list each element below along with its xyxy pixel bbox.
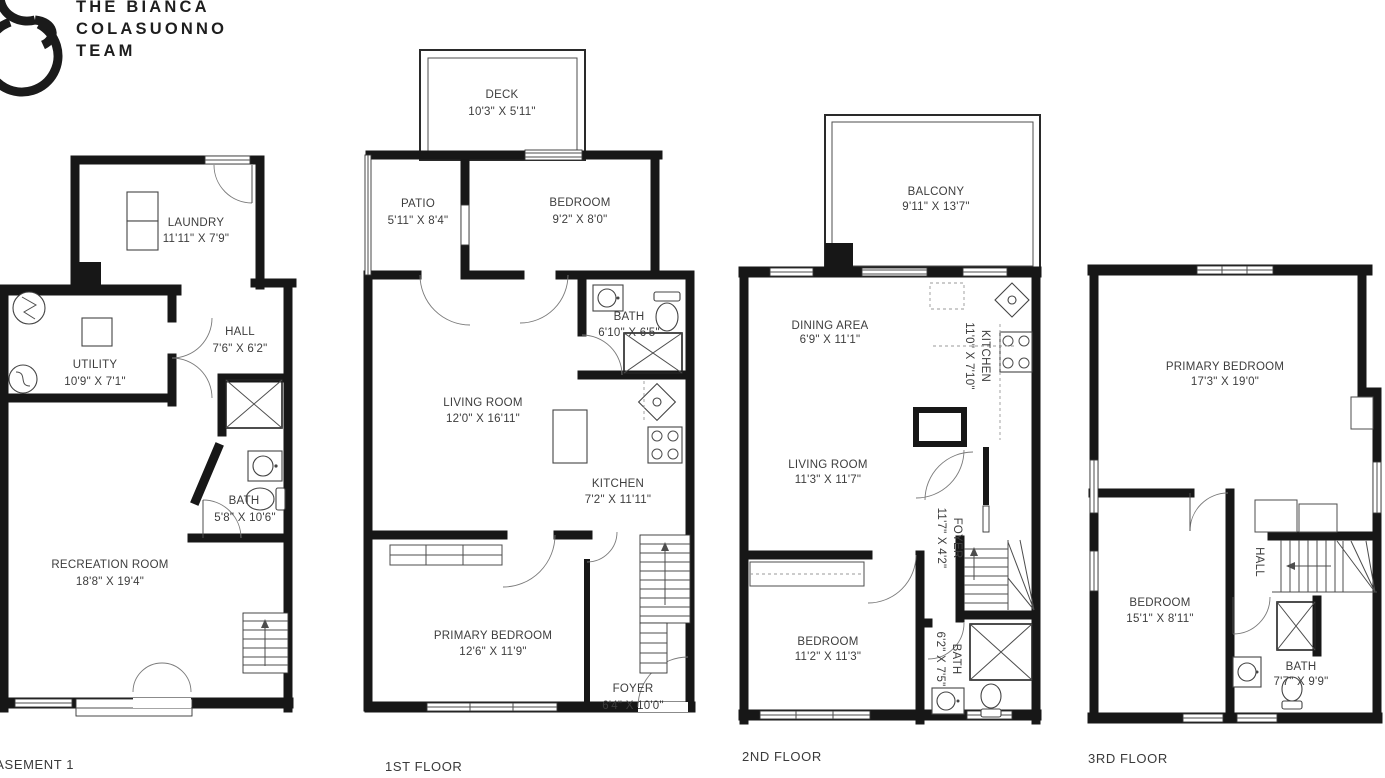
floor-label-first: 1ST FLOOR (385, 759, 462, 774)
room-dims-bath: 7'7" X 9'9" (1274, 676, 1329, 688)
room-dims-living: 11'3" X 11'7" (795, 474, 862, 486)
room-label-deck: DECK (486, 89, 519, 101)
third-stairs (1272, 540, 1377, 592)
room-dims-primary: 12'6" X 11'9" (459, 646, 526, 658)
first-deck (420, 50, 585, 160)
room-label-bedroom: BEDROOM (797, 636, 858, 648)
room-dims-kitchen: 7'2" X 11'11" (585, 494, 652, 506)
room-label-bath: BATH (950, 644, 962, 675)
basement-shower (226, 380, 282, 428)
room-label-primary: PRIMARY BEDROOM (434, 630, 552, 642)
room-label-balcony: BALCONY (908, 186, 965, 198)
room-dims-kitchen: 11'0" X 7'10" (963, 322, 975, 389)
room-dims-foyer: 6'4" X 10'0" (602, 700, 664, 712)
room-dims-dining: 6'9" X 11'1" (800, 334, 861, 346)
floor-plan-third: PRIMARY BEDROOM 17'3" X 19'0" BEDROOM 15… (1085, 260, 1385, 735)
room-label-foyer: FOYER (613, 683, 654, 695)
floor-plan-second: BALCONY 9'11" X 13'7" DINING AREA 6'9" X… (720, 110, 1050, 735)
room-label-utility: UTILITY (73, 359, 118, 371)
floor-plan-first: DECK 10'3" X 5'11" PATIO 5'11" X 8'4" BE… (360, 45, 700, 735)
room-dims-bedroom: 15'1" X 8'11" (1126, 613, 1193, 625)
floor-plan-basement: LAUNDRY 11'11" X 7'9" UTILITY 10'9" X 7'… (0, 150, 300, 735)
logo-line-3: TEAM (76, 40, 227, 62)
room-dims-bedroom: 9'2" X 8'0" (553, 214, 608, 226)
room-label-primary: PRIMARY BEDROOM (1166, 361, 1284, 373)
room-dims-living: 12'0" X 16'11" (446, 413, 520, 425)
room-label-hall: HALL (1253, 547, 1265, 577)
first-windows (365, 150, 688, 712)
room-dims-bedroom: 11'2" X 11'3" (795, 651, 862, 663)
room-label-hall: HALL (225, 326, 255, 338)
room-dims-bath: 5'8" X 10'6" (214, 512, 276, 524)
room-dims-deck: 10'3" X 5'11" (468, 106, 535, 118)
room-label-bath: BATH (614, 311, 645, 323)
first-kitchen-fixtures (553, 381, 682, 463)
third-closets (1255, 397, 1373, 532)
room-dims-recreation: 18'8" X 19'4" (76, 576, 144, 588)
third-walls (1093, 270, 1377, 718)
room-dims-foyer: 11'7" X 4'2" (935, 508, 947, 569)
room-dims-laundry: 11'11" X 7'9" (163, 233, 230, 245)
room-label-recreation: RECREATION ROOM (51, 559, 168, 571)
logo-line-1: THE BIANCA (76, 0, 227, 18)
room-dims-primary: 17'3" X 19'0" (1191, 376, 1259, 388)
room-label-bath: BATH (1286, 661, 1317, 673)
logo-line-2: COLASUONNO (76, 18, 227, 40)
room-label-living: LIVING ROOM (788, 459, 867, 471)
first-stairs (640, 535, 690, 673)
room-dims-utility: 10'9" X 7'1" (64, 376, 126, 388)
second-wardrobe (750, 562, 864, 586)
room-label-foyer: FOYER (951, 518, 963, 559)
second-walls (744, 272, 1036, 720)
room-label-bedroom: BEDROOM (1129, 597, 1190, 609)
second-bath-fixtures (932, 624, 1032, 717)
room-dims-bath: 6'2" X 7'5" (934, 632, 946, 687)
room-label-bath: BATH (229, 495, 260, 507)
brand-logo: THE BIANCA COLASUONNO TEAM (76, 0, 227, 62)
basement-stairs (243, 613, 288, 673)
first-wardrobe (390, 545, 502, 565)
third-bath-fixtures (1233, 602, 1315, 709)
room-label-kitchen: KITCHEN (592, 478, 644, 490)
floor-plan-page: THE BIANCA COLASUONNO TEAM (0, 0, 1385, 778)
room-dims-bath: 6'10" X 6'5" (598, 327, 660, 339)
floor-label-third: 3RD FLOOR (1088, 751, 1168, 766)
floor-label-basement: BASEMENT 1 (0, 757, 74, 772)
room-dims-balcony: 9'11" X 13'7" (902, 201, 969, 213)
room-label-living: LIVING ROOM (443, 397, 522, 409)
washer-dryer (127, 192, 158, 250)
room-dims-patio: 5'11" X 8'4" (388, 215, 449, 227)
room-label-kitchen: KITCHEN (979, 330, 991, 382)
room-label-patio: PATIO (401, 198, 435, 210)
room-label-laundry: LAUNDRY (168, 217, 225, 229)
basement-sink (248, 451, 282, 481)
room-label-bedroom: BEDROOM (549, 197, 610, 209)
room-dims-hall: 7'6" X 6'2" (213, 343, 268, 355)
room-label-dining: DINING AREA (792, 320, 869, 332)
second-stairs (964, 540, 1034, 610)
floor-label-second: 2ND FLOOR (742, 749, 822, 764)
